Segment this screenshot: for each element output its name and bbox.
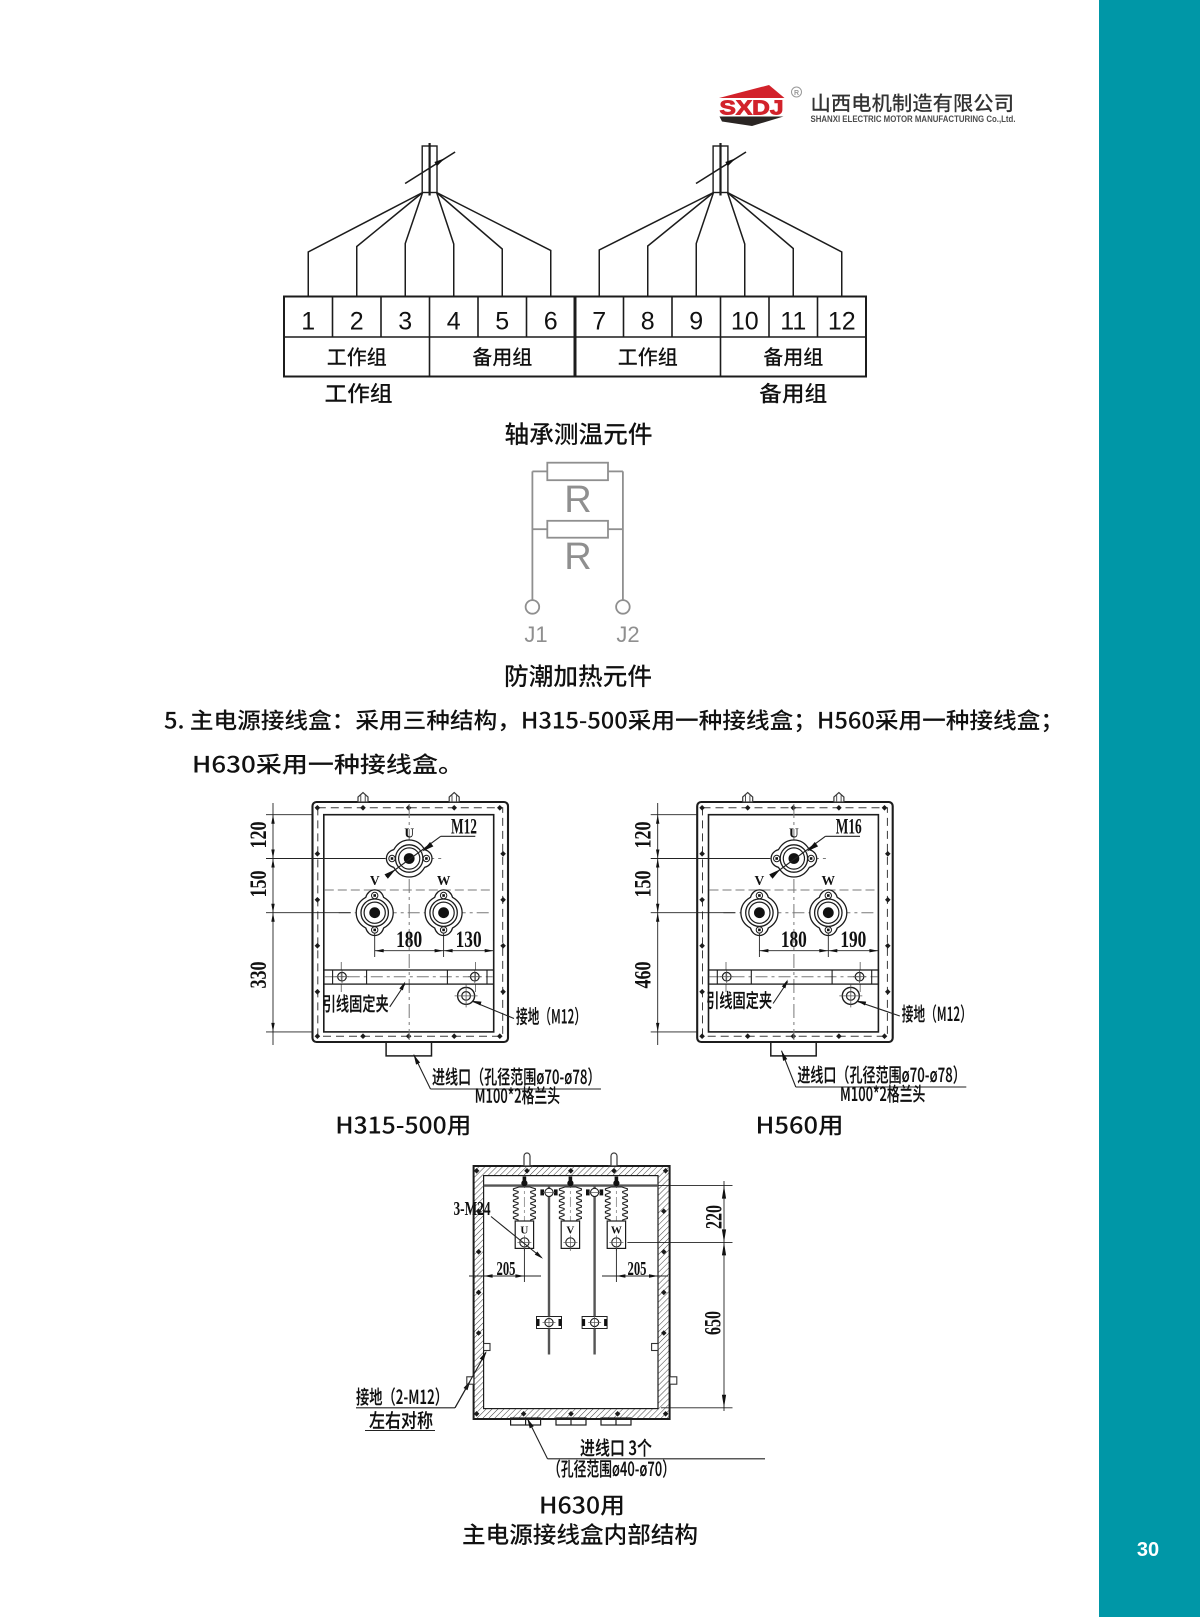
- svg-text:W: W: [611, 1225, 622, 1237]
- svg-text:120: 120: [246, 822, 271, 849]
- svg-text:7: 7: [592, 308, 606, 336]
- svg-text:R: R: [564, 536, 591, 578]
- svg-text:150: 150: [631, 871, 656, 898]
- svg-text:205: 205: [497, 1258, 516, 1280]
- svg-text:8: 8: [641, 308, 655, 336]
- svg-text:V: V: [755, 873, 765, 888]
- svg-text:180: 180: [781, 927, 807, 952]
- svg-text:SXDJ: SXDJ: [720, 98, 784, 120]
- svg-text:11: 11: [780, 308, 806, 336]
- svg-text:J2: J2: [616, 622, 639, 647]
- svg-text:120: 120: [631, 822, 656, 849]
- svg-text:U: U: [404, 826, 414, 841]
- svg-text:R: R: [564, 479, 591, 521]
- svg-text:180: 180: [396, 927, 422, 952]
- svg-text:10: 10: [731, 308, 759, 336]
- svg-text:220: 220: [701, 1205, 726, 1229]
- svg-text:SHANXI ELECTRIC MOTOR MANUFACT: SHANXI ELECTRIC MOTOR MANUFACTURING Co.,…: [811, 114, 1016, 124]
- svg-text:190: 190: [840, 927, 866, 952]
- svg-text:150: 150: [246, 871, 271, 898]
- svg-text:W: W: [822, 873, 836, 888]
- svg-text:205: 205: [628, 1258, 647, 1280]
- svg-text:V: V: [566, 1225, 574, 1237]
- svg-text:330: 330: [246, 962, 271, 989]
- svg-text:650: 650: [701, 1311, 726, 1335]
- svg-text:9: 9: [689, 308, 703, 336]
- svg-text:M12: M12: [451, 814, 477, 839]
- svg-text:R: R: [794, 90, 799, 97]
- svg-text:5: 5: [495, 308, 509, 336]
- svg-text:130: 130: [456, 927, 482, 952]
- svg-text:J1: J1: [524, 622, 547, 647]
- svg-text:460: 460: [631, 962, 656, 989]
- svg-text:M16: M16: [836, 814, 862, 839]
- svg-text:U: U: [789, 826, 799, 841]
- svg-text:30: 30: [1137, 1539, 1159, 1561]
- svg-text:2: 2: [350, 308, 364, 336]
- svg-text:U: U: [520, 1225, 528, 1237]
- svg-text:1: 1: [301, 308, 315, 336]
- svg-text:4: 4: [447, 308, 461, 336]
- svg-text:12: 12: [828, 308, 856, 336]
- svg-text:6: 6: [544, 308, 558, 336]
- svg-text:3: 3: [398, 308, 412, 336]
- svg-text:W: W: [437, 873, 451, 888]
- svg-text:V: V: [370, 873, 380, 888]
- svg-text:3-M24: 3-M24: [454, 1199, 491, 1220]
